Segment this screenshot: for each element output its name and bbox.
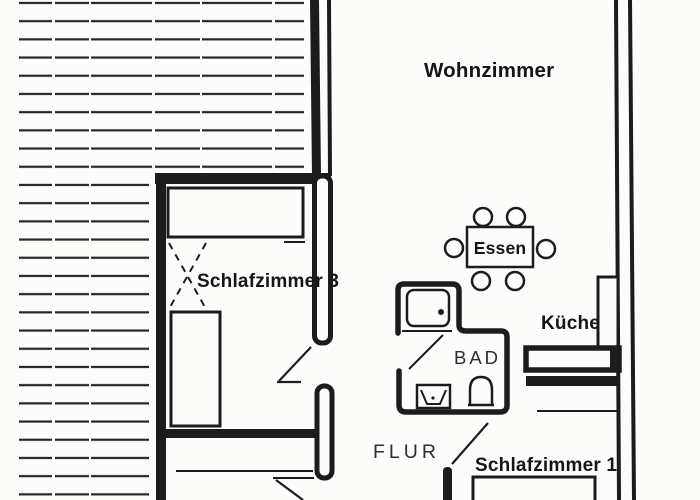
room-label-flur: FLUR	[373, 441, 440, 463]
toilet	[470, 377, 492, 405]
bedroom1-top-wall	[526, 376, 619, 386]
kitchen-counter-bottom	[526, 348, 619, 370]
exterior-wall-inner	[614, 0, 621, 500]
bedroom3-door-swing	[279, 347, 311, 381]
bedroom3-sideboard	[168, 188, 303, 237]
shower-drain	[438, 309, 444, 315]
bedroom3-left-wall	[156, 173, 166, 500]
dining-chair	[507, 208, 525, 226]
hatched-area-left	[19, 174, 149, 500]
corridor-wall-upper-segment	[315, 176, 331, 343]
bedroom3-top-wall	[155, 173, 331, 184]
floor-plan-sheet: Wohnzimmer Schlafzimmer 3 Essen Küche BA…	[0, 0, 700, 500]
sink-drain	[431, 396, 434, 399]
bedroom3-bed	[171, 312, 220, 426]
room-label-wohnzimmer: Wohnzimmer	[424, 59, 554, 82]
dining-chair	[537, 240, 555, 258]
kitchen-counter-side	[598, 277, 618, 350]
central-wall-inner-line	[327, 0, 332, 176]
dining-chair	[474, 208, 492, 226]
central-wall-upper	[310, 0, 321, 176]
room-label-schlafzimmer3: Schlafzimmer 3	[197, 271, 339, 292]
bedroom2-door-swing	[276, 480, 303, 500]
hatched-area-top	[19, 0, 304, 174]
room-label-essen: Essen	[474, 238, 527, 258]
shower	[407, 290, 449, 326]
dining-chair	[472, 272, 490, 290]
room-label-kueche: Küche	[541, 313, 600, 334]
dining-chair	[445, 239, 463, 257]
exterior-wall-outer	[628, 0, 636, 500]
floor-plan-drawing: Wohnzimmer Schlafzimmer 3 Essen Küche BA…	[0, 0, 700, 500]
kitchen-counter-end	[610, 349, 619, 369]
bathroom-door-swing	[409, 335, 443, 369]
bedroom1-bed	[473, 477, 595, 500]
corridor-wall-lower-segment	[317, 386, 332, 478]
bedroom3-bottom-wall	[166, 429, 317, 438]
dining-chair	[506, 272, 524, 290]
bedroom1-door-post	[443, 467, 452, 500]
room-label-schlafzimmer1: Schlafzimmer 1	[475, 455, 617, 476]
room-label-bad: BAD	[454, 347, 501, 368]
